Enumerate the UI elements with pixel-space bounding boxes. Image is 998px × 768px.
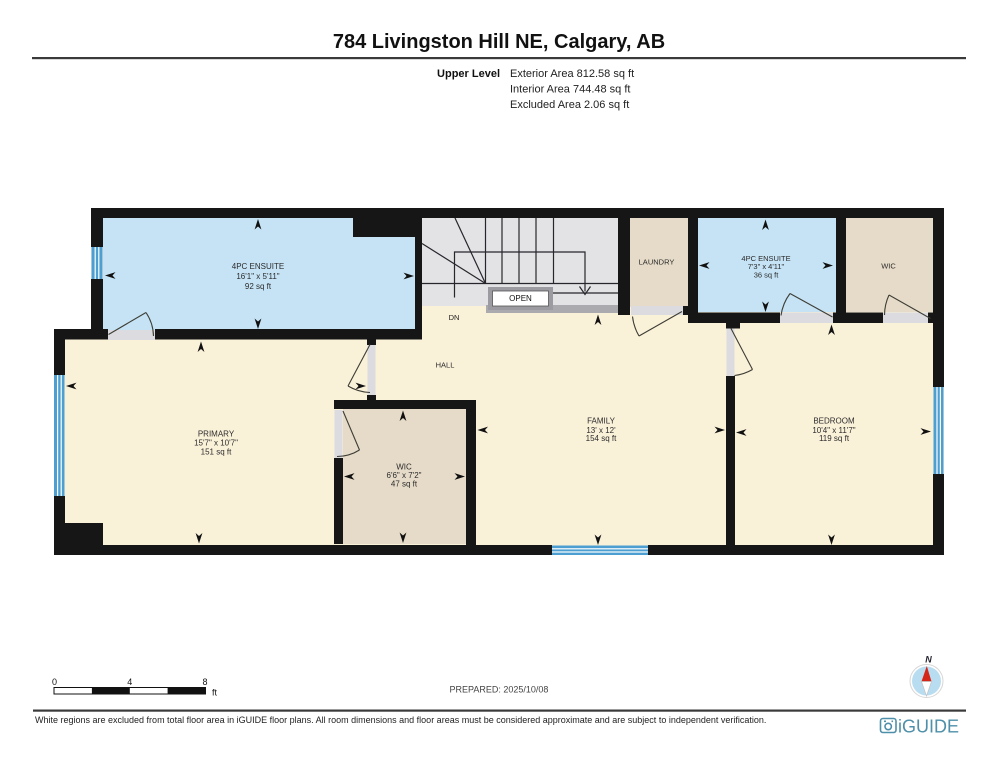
svg-text:Interior Area 744.48 sq ft: Interior Area 744.48 sq ft [510, 84, 630, 96]
svg-text:47 sq ft: 47 sq ft [391, 480, 418, 489]
svg-text:N: N [925, 655, 932, 665]
svg-text:8: 8 [202, 677, 207, 687]
svg-text:119 sq ft: 119 sq ft [819, 434, 850, 443]
svg-text:DN: DN [449, 313, 460, 322]
svg-text:4: 4 [127, 677, 132, 687]
svg-text:0: 0 [52, 677, 57, 687]
svg-text:16'1" x 5'11": 16'1" x 5'11" [236, 272, 279, 281]
svg-text:White regions are excluded fro: White regions are excluded from total fl… [35, 715, 766, 725]
svg-text:BEDROOM: BEDROOM [813, 416, 855, 425]
svg-text:Upper Level: Upper Level [437, 68, 500, 80]
svg-text:OPEN: OPEN [509, 294, 532, 303]
svg-text:FAMILY: FAMILY [587, 416, 616, 425]
svg-text:LAUNDRY: LAUNDRY [639, 257, 675, 266]
svg-text:PRIMARY: PRIMARY [198, 429, 235, 438]
svg-text:92 sq ft: 92 sq ft [245, 282, 272, 291]
svg-text:154 sq ft: 154 sq ft [586, 434, 617, 443]
svg-text:Excluded Area 2.06 sq ft: Excluded Area 2.06 sq ft [510, 99, 629, 111]
svg-text:HALL: HALL [436, 360, 455, 369]
svg-text:WIC: WIC [396, 463, 412, 472]
svg-text:iGUIDE: iGUIDE [898, 717, 959, 737]
svg-text:15'7" x 10'7": 15'7" x 10'7" [194, 438, 238, 447]
svg-text:4PC ENSUITE: 4PC ENSUITE [232, 262, 284, 271]
svg-text:Exterior Area 812.58 sq ft: Exterior Area 812.58 sq ft [510, 68, 634, 80]
svg-text:36 sq ft: 36 sq ft [754, 270, 780, 279]
svg-text:WIC: WIC [881, 261, 896, 270]
svg-text:PREPARED: 2025/10/08: PREPARED: 2025/10/08 [450, 685, 549, 695]
svg-text:784 Livingston Hill NE, Calgar: 784 Livingston Hill NE, Calgary, AB [333, 31, 665, 53]
svg-text:151 sq ft: 151 sq ft [201, 448, 232, 457]
svg-text:ft: ft [212, 688, 218, 698]
